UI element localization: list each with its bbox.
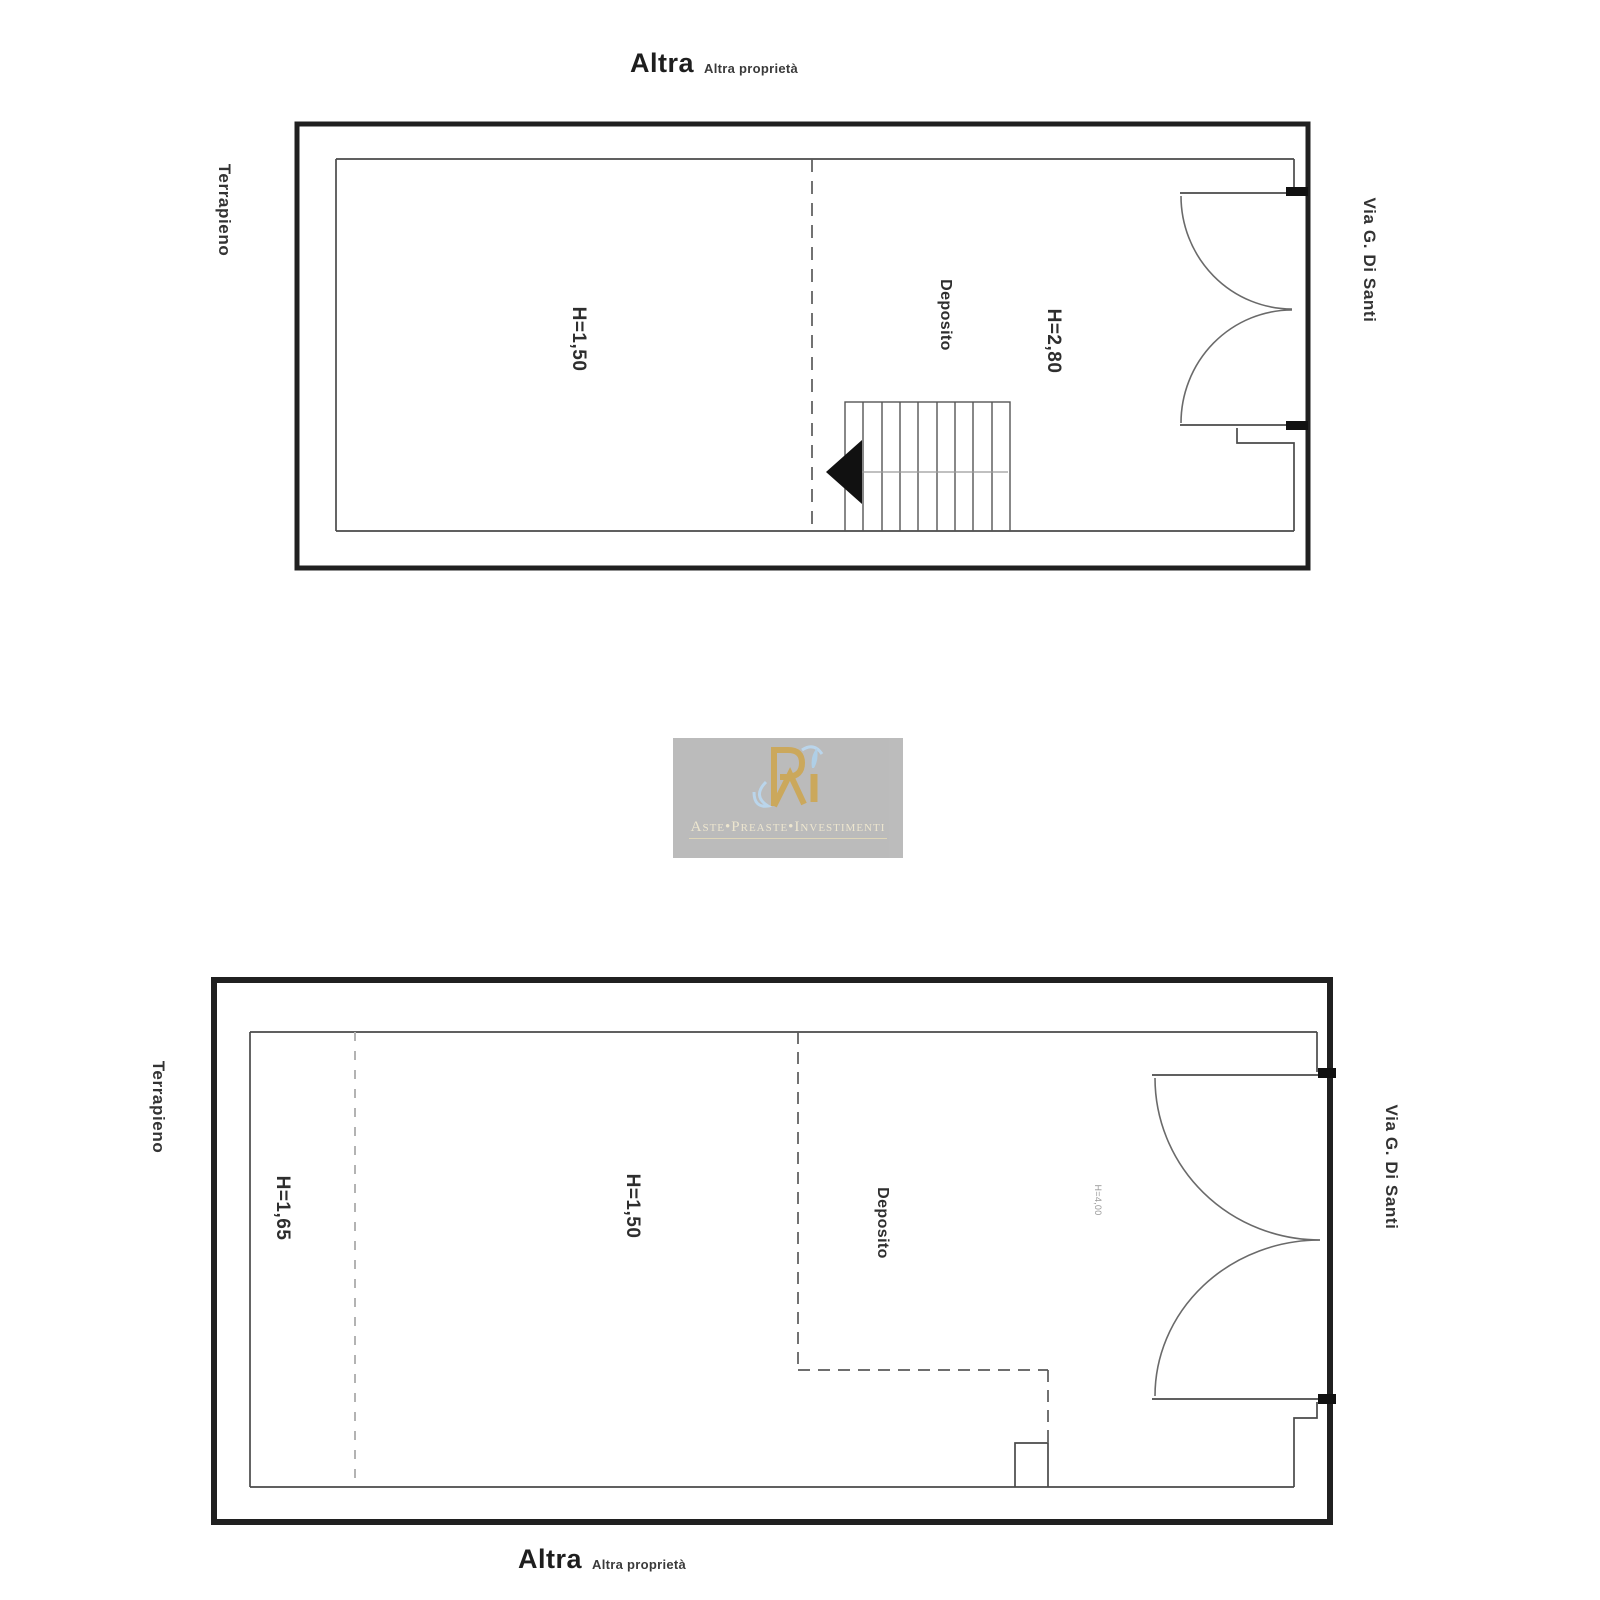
brand-name-text: Aste•Preaste•Investimenti	[689, 819, 888, 839]
door-hinge-mark	[1286, 421, 1308, 430]
brand-logo-mark	[754, 747, 822, 806]
upper-deposito-height-label: H=2,80	[1042, 309, 1064, 374]
logo-swoosh-left	[754, 782, 768, 806]
upper-plan	[297, 124, 1308, 568]
lower-right-street-label: Via G. Di Santi	[1381, 1105, 1401, 1230]
upper-outer-wall	[297, 124, 1308, 568]
upper-left-boundary-label: Terrapieno	[214, 164, 234, 257]
door-swing-arc	[1181, 196, 1292, 309]
upper-right-street-label: Via G. Di Santi	[1359, 198, 1379, 323]
logo-swoosh-right	[802, 747, 822, 754]
upper-main-room-height-label: H=1,50	[567, 307, 589, 372]
door-swing-arc	[1155, 1078, 1320, 1240]
door-swing-arc	[1155, 1240, 1320, 1396]
door-hinge-mark	[1318, 1394, 1336, 1404]
stairs-outline	[845, 402, 1010, 531]
logo-flame-dot	[812, 748, 818, 768]
lower-wall-notch	[1015, 1443, 1048, 1487]
lower-boundary-bottom-label: Altra Altra proprietà	[518, 1546, 686, 1573]
upper-entrance-door	[1180, 187, 1308, 430]
logo-roof-shape	[774, 774, 804, 806]
door-swing-arc	[1181, 310, 1292, 423]
door-hinge-mark	[1318, 1068, 1336, 1078]
upper-deposito-label: Deposito	[936, 279, 954, 351]
agency-watermark: Aste•Preaste•Investimenti	[673, 738, 903, 858]
lower-left-zone-height-label: H=1,65	[271, 1176, 293, 1241]
boundary-label-bold: Altra	[518, 1546, 582, 1573]
upper-inner-walls	[336, 159, 1294, 531]
floor-plan-page: Altra Altra proprietà Terrapieno Via G. …	[0, 0, 1600, 1600]
upper-stairs	[826, 402, 1010, 531]
lower-deposito-label: Deposito	[873, 1187, 891, 1259]
brand-logo	[742, 738, 834, 818]
upper-boundary-top-label: Altra Altra proprietà	[630, 50, 798, 77]
lower-door-note-label: H=4,00	[1093, 1184, 1103, 1215]
lower-left-boundary-label: Terrapieno	[148, 1061, 168, 1154]
boundary-label-small: Altra proprietà	[592, 1557, 686, 1572]
lower-plan	[214, 980, 1336, 1522]
boundary-label-bold: Altra	[630, 50, 694, 77]
lower-outer-wall	[214, 980, 1330, 1522]
stairs-direction-arrow-icon	[826, 440, 862, 504]
lower-door-threshold	[1294, 1402, 1317, 1487]
lower-deposito-partition	[798, 1032, 1048, 1443]
lower-main-room-height-label: H=1,50	[621, 1174, 643, 1239]
lower-entrance-door	[1152, 1068, 1336, 1404]
door-hinge-mark	[1286, 187, 1308, 196]
boundary-label-small: Altra proprietà	[704, 61, 798, 76]
upper-door-threshold	[1237, 428, 1294, 531]
